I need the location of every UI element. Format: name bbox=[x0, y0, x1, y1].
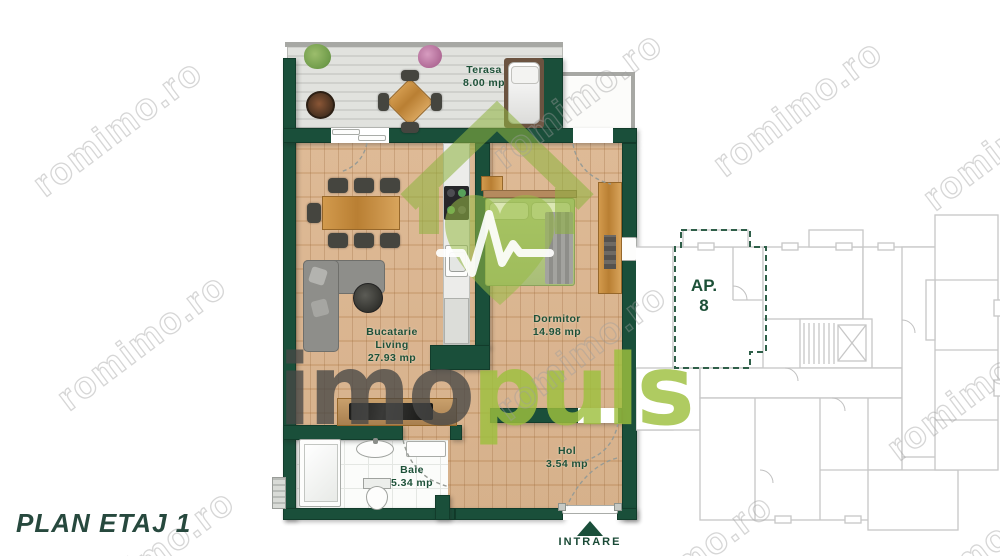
label-terasa: Terasa 8.00 mp bbox=[444, 64, 524, 90]
hol-area: 3.54 mp bbox=[527, 458, 607, 471]
label-ap8: AP. 8 bbox=[681, 276, 727, 316]
dormitor-area: 14.98 mp bbox=[517, 326, 597, 339]
label-baie: Baie 5.34 mp bbox=[372, 464, 452, 490]
ap8-line1: AP. bbox=[681, 276, 727, 296]
terasa-name: Terasa bbox=[444, 64, 524, 77]
baie-area: 5.34 mp bbox=[372, 477, 452, 490]
entrance-arrow-icon bbox=[577, 521, 603, 536]
page-title: PLAN ETAJ 1 bbox=[16, 508, 191, 539]
label-hol: Hol 3.54 mp bbox=[527, 445, 607, 471]
living-name-line1: Bucatarie bbox=[352, 326, 432, 339]
hol-name: Hol bbox=[527, 445, 607, 458]
label-living: Bucatarie Living 27.93 mp bbox=[352, 326, 432, 365]
living-name-line2: Living bbox=[352, 339, 432, 352]
ap8-line2: 8 bbox=[681, 296, 727, 316]
baie-name: Baie bbox=[372, 464, 452, 477]
imopuls-logo-text: imopuls bbox=[278, 342, 692, 440]
living-area: 27.93 mp bbox=[352, 352, 432, 365]
label-dormitor: Dormitor 14.98 mp bbox=[517, 313, 597, 339]
entrance-label: INTRARE bbox=[549, 536, 631, 548]
floorplan-canvas: imopuls romimo.ro romimo.ro romimo.ro ro… bbox=[0, 0, 1000, 556]
dormitor-name: Dormitor bbox=[517, 313, 597, 326]
imopuls-house-logo bbox=[380, 95, 620, 325]
logo-puls: puls bbox=[472, 334, 692, 448]
terasa-area: 8.00 mp bbox=[444, 77, 524, 90]
